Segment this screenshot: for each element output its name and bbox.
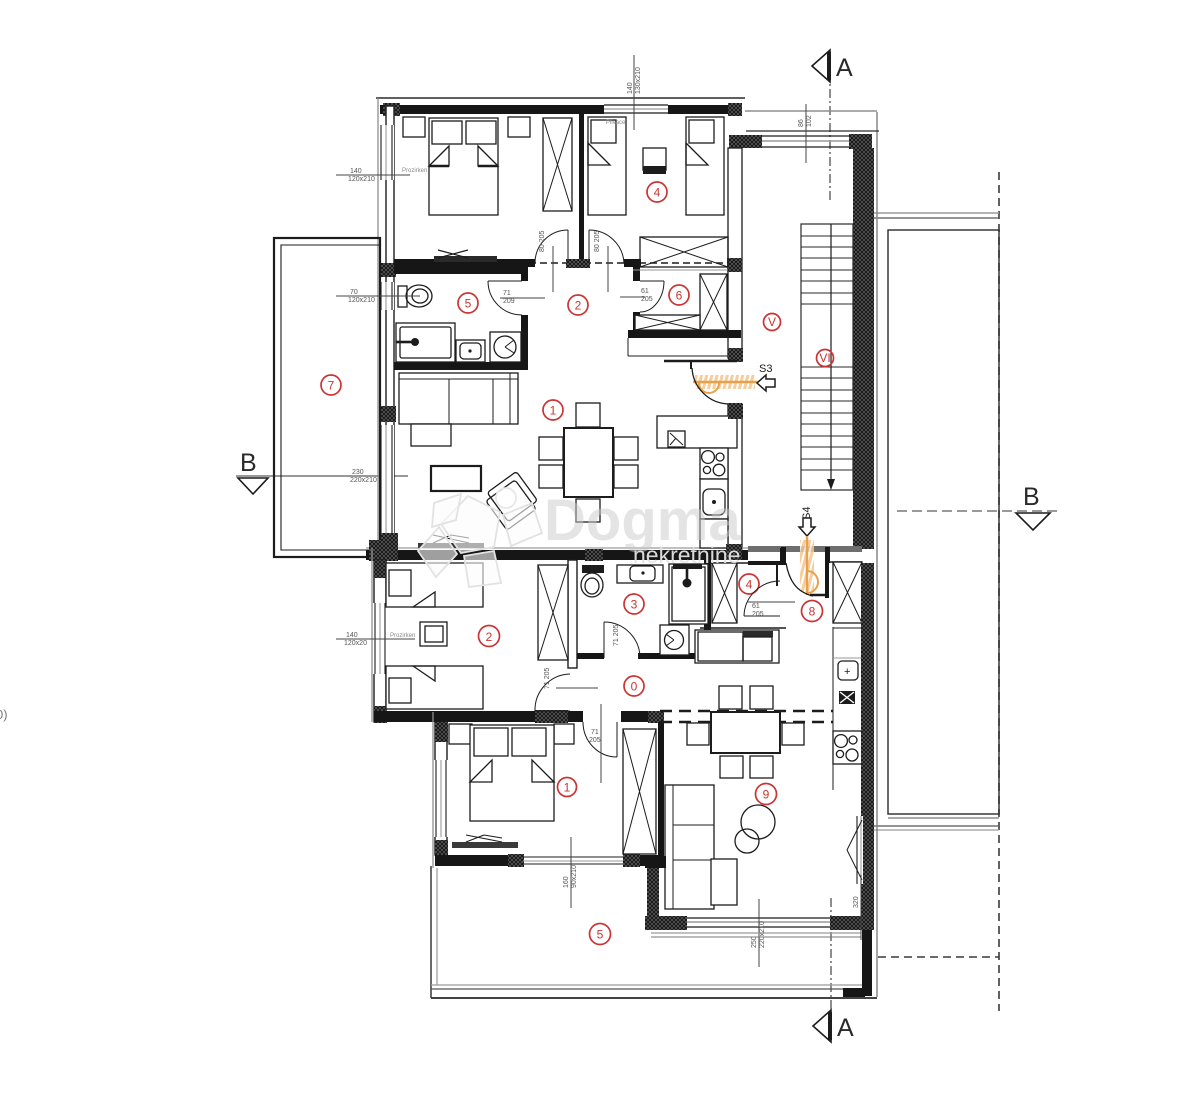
svg-text:B: B (1023, 483, 1040, 511)
svg-text:61: 61 (641, 288, 649, 295)
svg-text:5: 5 (597, 928, 604, 942)
svg-text:VI: VI (819, 351, 830, 365)
svg-text:220x210: 220x210 (759, 921, 766, 948)
svg-text:nekretnine: nekretnine (633, 542, 740, 568)
svg-text:3: 3 (631, 598, 638, 612)
svg-text:140: 140 (627, 82, 634, 94)
svg-text:120x20: 120x20 (344, 640, 367, 647)
svg-text:A: A (837, 1014, 854, 1042)
svg-text:71 205: 71 205 (544, 667, 551, 689)
svg-text:B: B (240, 449, 257, 477)
svg-text:8: 8 (809, 605, 816, 619)
svg-text:61: 61 (752, 603, 760, 610)
svg-text:130x210: 130x210 (635, 67, 642, 94)
svg-text:0: 0 (631, 680, 638, 694)
svg-text:80 205: 80 205 (539, 230, 546, 252)
svg-text:140: 140 (350, 168, 362, 175)
svg-text:5: 5 (465, 297, 472, 311)
svg-text:320: 320 (853, 896, 860, 908)
svg-text:250: 250 (751, 936, 758, 948)
svg-text:0): 0) (0, 707, 8, 722)
svg-text:1: 1 (550, 404, 557, 418)
svg-text:71: 71 (503, 290, 511, 297)
svg-text:70: 70 (350, 289, 358, 296)
svg-text:120x210: 120x210 (348, 176, 375, 183)
svg-text:220x210: 220x210 (350, 477, 377, 484)
svg-text:2: 2 (486, 630, 493, 644)
svg-text:160: 160 (563, 876, 570, 888)
svg-text:6: 6 (676, 289, 683, 303)
svg-text:2: 2 (575, 299, 582, 313)
svg-text:71: 71 (591, 729, 599, 736)
svg-text:S3: S3 (759, 363, 772, 375)
svg-text:Prozirken: Prozirken (390, 633, 415, 639)
svg-text:71 205: 71 205 (613, 624, 620, 646)
svg-text:120x210: 120x210 (348, 297, 375, 304)
svg-text:Plivace: Plivace (606, 120, 626, 126)
svg-text:86: 86 (798, 119, 805, 127)
svg-text:205: 205 (752, 611, 764, 618)
svg-text:+: + (844, 666, 850, 678)
svg-text:209: 209 (503, 298, 515, 305)
svg-text:A: A (836, 54, 853, 82)
svg-text:1: 1 (564, 781, 571, 795)
svg-text:230: 230 (352, 469, 364, 476)
svg-text:4: 4 (746, 578, 753, 592)
svg-text:4: 4 (654, 186, 661, 200)
svg-text:7: 7 (328, 379, 335, 393)
svg-text:140: 140 (346, 632, 358, 639)
svg-text:V: V (768, 315, 776, 329)
svg-text:80 205: 80 205 (594, 230, 601, 252)
svg-text:102: 102 (806, 115, 813, 127)
svg-text:Prozirken: Prozirken (402, 168, 427, 174)
svg-text:9: 9 (763, 788, 770, 802)
svg-text:205: 205 (589, 737, 601, 744)
svg-text:90x210: 90x210 (571, 865, 578, 888)
